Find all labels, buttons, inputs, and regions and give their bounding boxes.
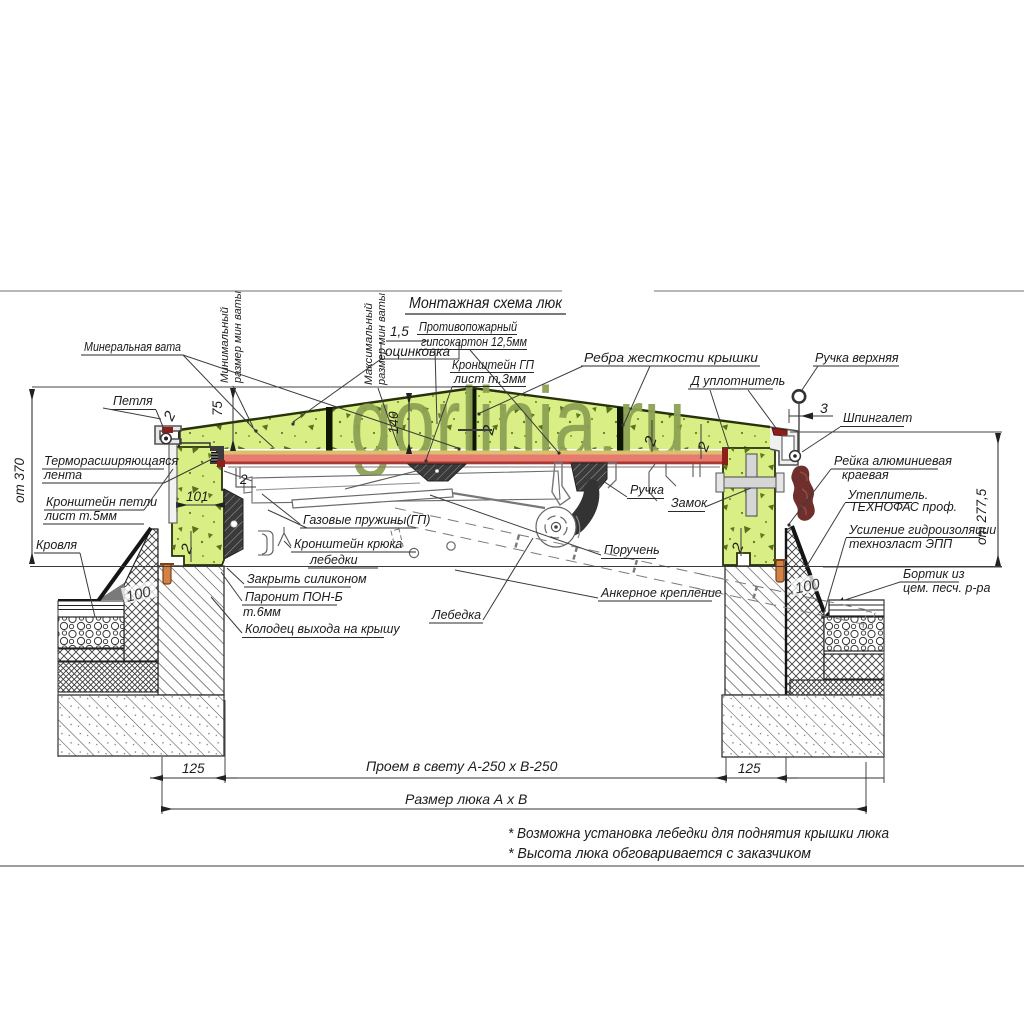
svg-text:Максимальный: Максимальный (363, 303, 375, 385)
svg-text:* Возможна установка лебедки д: * Возможна установка лебедки для подняти… (508, 826, 889, 842)
svg-text:2: 2 (239, 472, 248, 487)
svg-text:125: 125 (738, 761, 761, 776)
svg-text:т.6мм: т.6мм (243, 605, 281, 619)
svg-text:от 370: от 370 (12, 457, 27, 503)
svg-text:101: 101 (186, 489, 209, 504)
svg-text:Ребра жесткости крышки: Ребра жесткости крышки (584, 351, 758, 365)
svg-text:Колодец выхода на крышу: Колодец выхода на крышу (245, 622, 400, 636)
svg-text:1,5: 1,5 (390, 324, 409, 339)
svg-text:Размер люка А х В: Размер люка А х В (405, 791, 527, 807)
svg-text:Минимальный: Минимальный (219, 307, 231, 383)
svg-text:Газовые пружины(ГП): Газовые пружины(ГП) (303, 513, 430, 527)
svg-text:лента: лента (43, 468, 82, 482)
svg-text:Петля: Петля (113, 394, 153, 408)
svg-text:Кровля: Кровля (36, 538, 77, 552)
svg-text:цем. песч. р-ра: цем. песч. р-ра (903, 581, 990, 595)
svg-text:Лебедка: Лебедка (431, 608, 481, 622)
svg-text:ТЕХНОФАС проф.: ТЕХНОФАС проф. (850, 500, 957, 514)
svg-text:Паронит ПОН-Б: Паронит ПОН-Б (245, 590, 343, 604)
svg-text:3: 3 (820, 400, 828, 416)
svg-text:Усиление гидроизоляции: Усиление гидроизоляции (848, 523, 996, 537)
svg-text:лист т.3мм: лист т.3мм (453, 372, 526, 386)
svg-text:гипсокартон 12,5мм: гипсокартон 12,5мм (421, 335, 527, 349)
svg-text:Кронштейн крюка: Кронштейн крюка (294, 537, 402, 551)
svg-text:Бортик из: Бортик из (903, 567, 965, 581)
svg-text:размер мин ваты: размер мин ваты (376, 293, 388, 386)
svg-text:75: 75 (210, 400, 225, 416)
svg-text:Ручка верхняя: Ручка верхняя (815, 351, 899, 365)
svg-text:Кронштейн ГП: Кронштейн ГП (452, 358, 535, 372)
svg-text:Замок: Замок (671, 496, 708, 510)
svg-text:Закрыть силиконом: Закрыть силиконом (247, 572, 367, 586)
svg-text:125: 125 (182, 761, 205, 776)
svg-text:Проем в свету А-250 х В-250: Проем в свету А-250 х В-250 (366, 758, 558, 774)
svg-text:Д уплотнитель: Д уплотнитель (689, 374, 785, 388)
svg-text:Анкерное крепление: Анкерное крепление (600, 586, 722, 600)
svg-text:Противопожарный: Противопожарный (419, 320, 517, 334)
svg-text:Рейка алюминиевая: Рейка алюминиевая (834, 454, 952, 468)
svg-text:лебедки: лебедки (309, 553, 358, 567)
svg-text:Поручень: Поручень (604, 543, 660, 557)
svg-text:краевая: краевая (842, 468, 889, 482)
svg-text:технозласт ЭПП: технозласт ЭПП (849, 537, 953, 551)
svg-text:Кронштейн петли: Кронштейн петли (46, 495, 157, 509)
svg-text:Терморасширяющаяся: Терморасширяющаяся (44, 454, 179, 468)
svg-text:Ручка: Ручка (630, 483, 664, 497)
svg-text:Минеральная вата: Минеральная вата (84, 340, 181, 354)
svg-text:* Высота люка обговаривается с: * Высота люка обговаривается с заказчико… (508, 846, 811, 862)
svg-text:размер мин ваты: размер мин ваты (232, 291, 244, 384)
svg-text:Шпингалет: Шпингалет (843, 411, 912, 425)
svg-text:140: 140 (386, 411, 401, 434)
svg-text:Монтажная схема люк: Монтажная схема люк (409, 295, 563, 312)
svg-text:лист т.5мм: лист т.5мм (44, 509, 117, 523)
